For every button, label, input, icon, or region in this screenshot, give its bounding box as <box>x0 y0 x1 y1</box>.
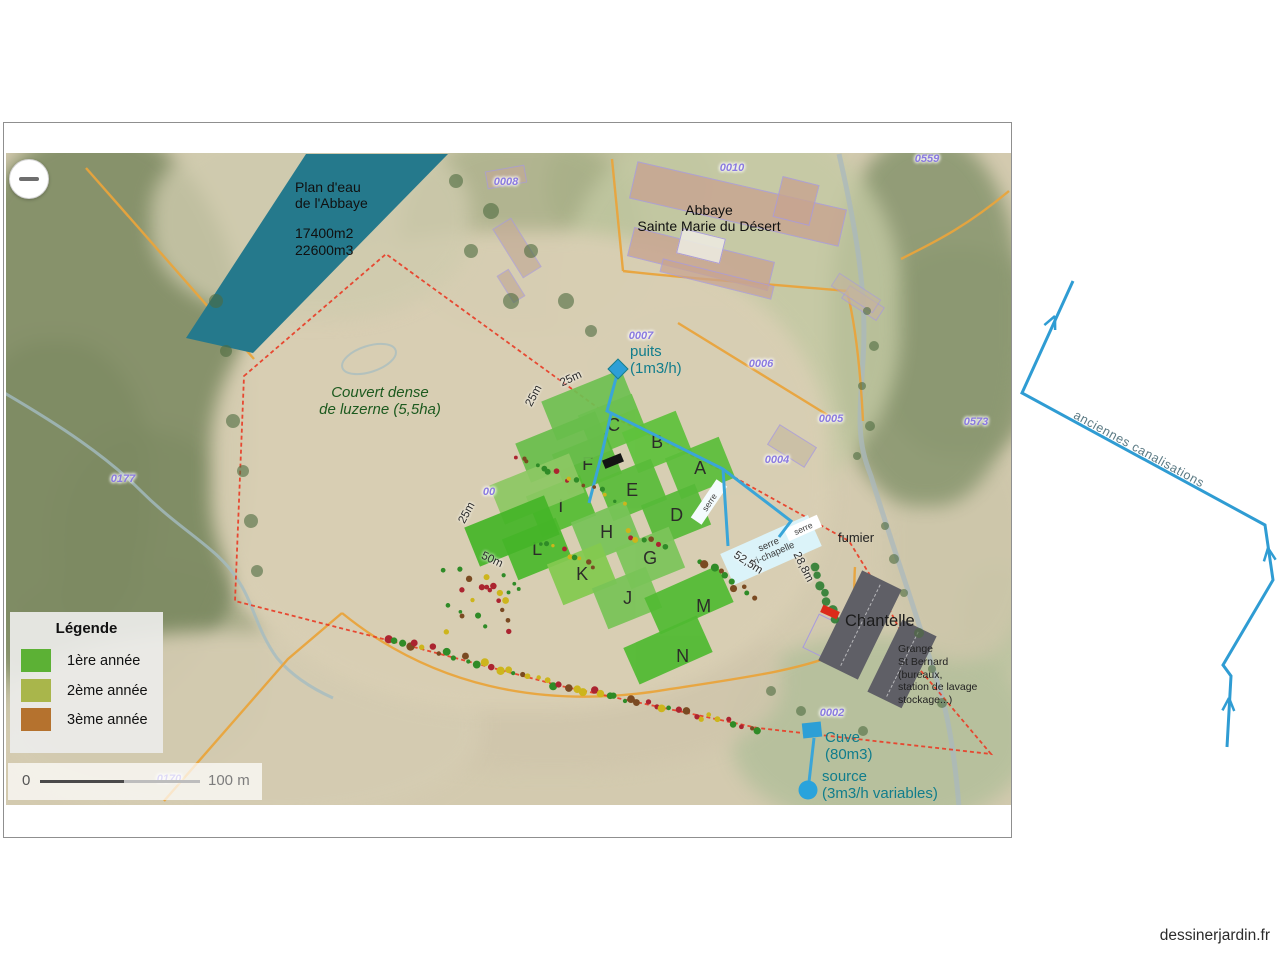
tank-label: Cuve (80m3) <box>825 730 873 764</box>
parcel-number: 0005 <box>819 413 843 425</box>
parcel-number: 0006 <box>749 358 773 370</box>
site-watermark: dessinerjardin.fr <box>1160 927 1270 945</box>
cover-crop-label: Couvert dense de luzerne (5,5ha) <box>304 384 456 419</box>
scale-line-dark <box>40 780 124 783</box>
legend-item-year3: 3ème année <box>21 708 148 731</box>
plot-letter: H <box>600 522 613 543</box>
plot-letter: K <box>576 564 588 585</box>
year3-swatch <box>21 708 51 731</box>
plot-letter: G <box>643 548 657 569</box>
plot-letter: N <box>676 646 689 667</box>
minus-icon <box>19 177 39 182</box>
water-label: Plan d'eau de l'Abbaye 17400m2 22600m3 <box>295 179 368 258</box>
parcel-number: 0002 <box>820 707 844 719</box>
scale-line-light <box>124 780 200 783</box>
parcel-number: 0010 <box>720 162 744 174</box>
parcel-number: 0559 <box>915 153 939 165</box>
spring-label: source (3m3/h variables) <box>822 769 938 803</box>
parcel-number: 0007 <box>629 330 653 342</box>
well-label: puits (1m3/h) <box>630 344 682 378</box>
parcel-number: 0008 <box>494 176 518 188</box>
plot-letter: M <box>696 596 711 617</box>
zoom-out-button[interactable] <box>9 159 49 199</box>
abbey-label: Abbaye Sainte Marie du Désert <box>623 202 795 234</box>
flow-arrow <box>1222 698 1229 710</box>
plot-letter: E <box>626 480 638 501</box>
year1-swatch <box>21 649 51 672</box>
year2-swatch <box>21 679 51 702</box>
legend-panel: Légende 1ère année 2ème année 3ème année <box>10 612 163 753</box>
legend-title: Légende <box>10 620 163 637</box>
spring-marker[interactable] <box>799 781 818 800</box>
plot-letter: B <box>651 432 663 453</box>
old-pipes-label: anciennes canalisations <box>1071 408 1206 490</box>
flow-arrow <box>1264 548 1268 561</box>
plot-letter: J <box>623 588 632 609</box>
scale-bar: 0 100 m <box>8 763 262 800</box>
pond-outline <box>338 338 399 380</box>
grange-label: Grange St Bernard (bureaux, station de l… <box>898 643 977 707</box>
parcel-number: 0177 <box>111 473 135 485</box>
parcel-number: 0004 <box>765 454 789 466</box>
chantelle-label: Chantelle <box>845 612 915 631</box>
parcel-number: 00 <box>483 486 495 498</box>
legend-item-year1: 1ère année <box>21 649 140 672</box>
tank-marker[interactable] <box>802 722 822 739</box>
flow-arrow <box>1268 548 1276 560</box>
plot-letter: D <box>670 505 683 526</box>
flow-arrow <box>1044 316 1055 325</box>
legend-item-year2: 2ème année <box>21 679 148 702</box>
plot-letter: A <box>694 458 706 479</box>
parcel-number: 0573 <box>964 416 988 428</box>
old-pipes-line <box>1022 281 1273 747</box>
flow-arrow <box>1229 698 1234 711</box>
manure-label: fumier <box>838 530 874 545</box>
